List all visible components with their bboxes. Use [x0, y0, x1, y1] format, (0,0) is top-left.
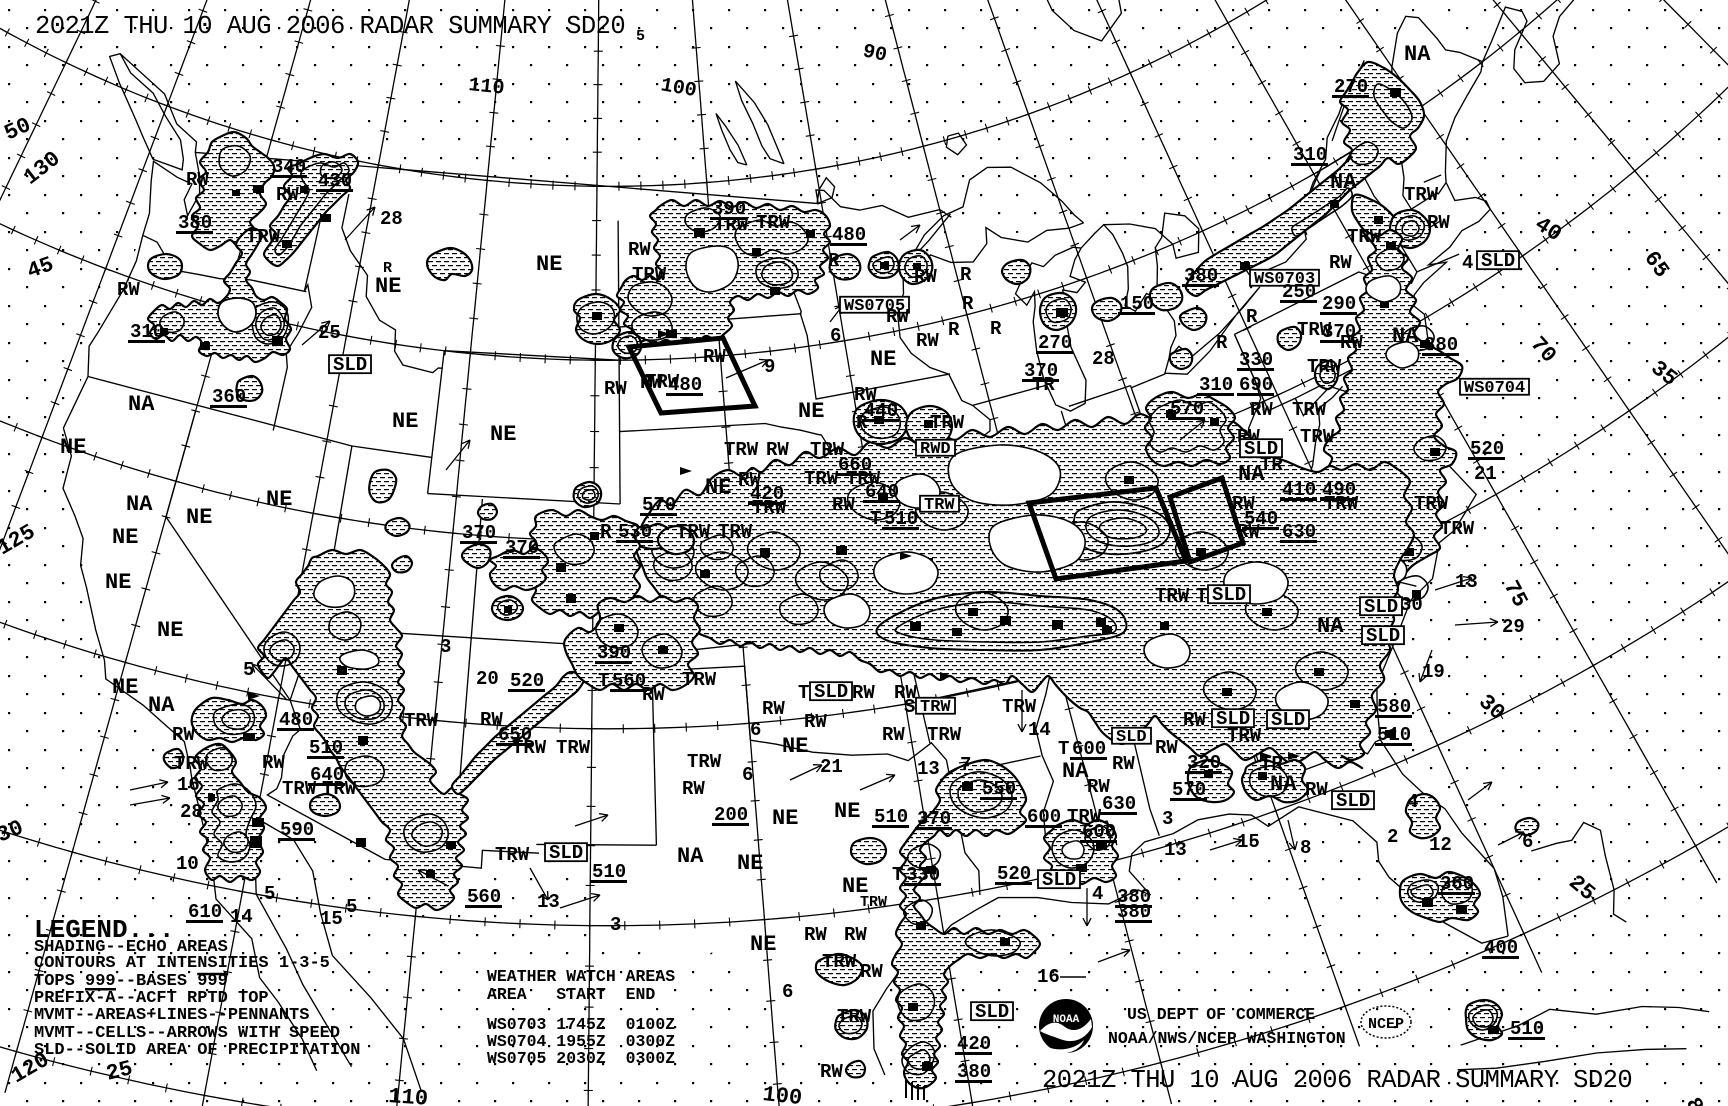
- svg-text:400: 400: [1484, 937, 1518, 959]
- svg-text:T: T: [1196, 585, 1207, 607]
- svg-text:690: 690: [1239, 374, 1273, 396]
- svg-text:550: 550: [982, 778, 1016, 800]
- svg-text:NE: NE: [750, 932, 776, 957]
- svg-text:SLD: SLD: [975, 1001, 1009, 1023]
- svg-text:RW: RW: [1183, 709, 1206, 731]
- svg-text:TRW: TRW: [1324, 493, 1359, 515]
- svg-text:NE: NE: [737, 851, 763, 876]
- svg-text:NE: NE: [105, 570, 131, 595]
- svg-text:RW: RW: [117, 279, 140, 301]
- svg-text:510: 510: [874, 806, 908, 828]
- svg-text:RW: RW: [682, 778, 705, 800]
- svg-text:TRW: TRW: [1227, 725, 1262, 747]
- svg-text:5: 5: [243, 659, 254, 681]
- svg-text:TRW: TRW: [860, 894, 887, 911]
- svg-text:630: 630: [1102, 793, 1136, 815]
- svg-text:530: 530: [618, 521, 652, 543]
- svg-text:TRW: TRW: [837, 1006, 872, 1028]
- svg-text:600: 600: [1072, 738, 1106, 760]
- svg-text:TRW: TRW: [1292, 399, 1327, 421]
- svg-text:AREA START END: AREA START END: [487, 985, 655, 1004]
- svg-text:SLD: SLD: [814, 681, 848, 703]
- svg-text:NA: NA: [1317, 614, 1344, 639]
- svg-text:TRW: TRW: [930, 412, 965, 434]
- svg-text:270: 270: [1038, 332, 1072, 354]
- svg-text:21: 21: [1474, 463, 1497, 485]
- svg-text:WEATHER WATCH AREAS: WEATHER WATCH AREAS: [487, 967, 675, 986]
- svg-text:510: 510: [884, 508, 918, 530]
- svg-text:R: R: [383, 260, 392, 277]
- svg-text:16: 16: [177, 774, 200, 796]
- svg-text:TRW: TRW: [927, 724, 962, 746]
- svg-text:6: 6: [1522, 831, 1533, 853]
- svg-text:SLD: SLD: [1366, 625, 1400, 647]
- svg-text:TRW: TRW: [756, 212, 791, 234]
- svg-text:2021Z THU 10 AUG 2006 RADAR SU: 2021Z THU 10 AUG 2006 RADAR SUMMARY SD20: [1042, 1066, 1632, 1095]
- svg-text:NA: NA: [1062, 759, 1089, 784]
- svg-text:640: 640: [865, 481, 899, 503]
- svg-text:600: 600: [1082, 821, 1116, 843]
- svg-text:15: 15: [1237, 831, 1260, 853]
- svg-text:600: 600: [1027, 806, 1061, 828]
- svg-text:RW: RW: [1155, 737, 1178, 759]
- svg-text:RW: RW: [1237, 521, 1260, 543]
- svg-text:TRW: TRW: [174, 753, 209, 775]
- svg-text:RW: RW: [1305, 779, 1328, 801]
- svg-text:TRW: TRW: [676, 521, 711, 543]
- svg-text:100: 100: [761, 1082, 803, 1106]
- svg-text:5: 5: [264, 883, 275, 905]
- svg-text:SLD: SLD: [1271, 709, 1305, 731]
- svg-text:TRW: TRW: [1300, 426, 1335, 448]
- svg-text:380: 380: [957, 1061, 991, 1083]
- svg-text:520: 520: [997, 863, 1031, 885]
- svg-text:T: T: [598, 670, 609, 692]
- svg-text:RWD: RWD: [920, 440, 951, 459]
- svg-text:R: R: [1246, 306, 1258, 328]
- svg-text:SLD: SLD: [1042, 869, 1076, 891]
- svg-text:RW: RW: [844, 924, 867, 946]
- svg-text:20: 20: [476, 668, 499, 690]
- svg-text:420: 420: [957, 1033, 991, 1055]
- svg-text:110: 110: [388, 1084, 429, 1106]
- svg-text:TRW: TRW: [512, 737, 547, 759]
- svg-text:25: 25: [318, 322, 341, 344]
- svg-text:380: 380: [1424, 334, 1458, 356]
- svg-text:TRW: TRW: [804, 468, 839, 490]
- svg-text:TRW: TRW: [1155, 585, 1190, 607]
- svg-text:270: 270: [1334, 76, 1368, 98]
- svg-text:NA: NA: [1392, 324, 1419, 349]
- svg-text:4: 4: [1407, 791, 1418, 813]
- svg-text:NE: NE: [186, 505, 212, 530]
- svg-text:4: 4: [1092, 883, 1103, 905]
- svg-text:510: 510: [592, 861, 626, 883]
- svg-text:RW: RW: [916, 330, 939, 352]
- svg-text:WS0704: WS0704: [1464, 379, 1525, 398]
- svg-text:NE: NE: [266, 487, 292, 512]
- svg-text:14: 14: [1028, 719, 1051, 741]
- svg-text:NE: NE: [60, 435, 86, 460]
- svg-text:RW: RW: [276, 184, 299, 206]
- svg-text:TRW: TRW: [724, 439, 759, 461]
- svg-text:520: 520: [1470, 438, 1504, 460]
- svg-text:570: 570: [642, 494, 676, 516]
- svg-text:6: 6: [830, 325, 841, 347]
- svg-text:NCEP: NCEP: [1368, 1016, 1404, 1033]
- svg-text:TRW: TRW: [687, 751, 722, 773]
- svg-text:SLD: SLD: [1481, 250, 1515, 272]
- svg-text:T: T: [798, 682, 809, 704]
- svg-text:R: R: [962, 293, 974, 315]
- svg-text:13: 13: [537, 891, 560, 913]
- svg-text:WS0705 2030Z 0300Z: WS0705 2030Z 0300Z: [487, 1049, 675, 1068]
- svg-text:590: 590: [280, 819, 314, 841]
- svg-text:NOAA/NWS/NCEP WASHINGTON: NOAA/NWS/NCEP WASHINGTON: [1108, 1029, 1346, 1048]
- svg-text:RW: RW: [886, 306, 909, 328]
- svg-text:21: 21: [820, 756, 843, 778]
- svg-text:TR: TR: [1032, 374, 1055, 396]
- svg-text:NE: NE: [490, 422, 516, 447]
- svg-text:30: 30: [1400, 594, 1423, 616]
- svg-text:510: 510: [1377, 724, 1411, 746]
- svg-text:9: 9: [764, 356, 775, 378]
- svg-text:TRW: TRW: [682, 669, 717, 691]
- svg-text:110: 110: [467, 74, 505, 101]
- svg-text:580: 580: [1377, 696, 1411, 718]
- svg-text:NOAA: NOAA: [1053, 1014, 1080, 1026]
- svg-text:19: 19: [1422, 661, 1445, 683]
- svg-text:NE: NE: [798, 399, 824, 424]
- svg-text:RW: RW: [1329, 252, 1352, 274]
- svg-text:T: T: [870, 508, 881, 530]
- svg-text:SLD: SLD: [333, 354, 367, 376]
- svg-text:360: 360: [1440, 873, 1474, 895]
- svg-text:TRW: TRW: [920, 698, 951, 717]
- svg-text:6: 6: [750, 719, 761, 741]
- svg-text:RW: RW: [186, 169, 209, 191]
- svg-text:NA: NA: [148, 693, 175, 718]
- svg-text:310: 310: [130, 321, 164, 343]
- svg-text:13: 13: [1455, 571, 1478, 593]
- svg-text:RW: RW: [1112, 753, 1135, 775]
- svg-text:TRW: TRW: [1414, 493, 1449, 515]
- svg-text:TRW: TRW: [556, 737, 591, 759]
- svg-text:US DEPT OF COMMERCE: US DEPT OF COMMERCE: [1127, 1005, 1315, 1024]
- svg-text:510: 510: [309, 737, 343, 759]
- svg-text:4: 4: [1462, 252, 1473, 274]
- svg-text:480: 480: [832, 224, 866, 246]
- svg-text:290: 290: [1322, 293, 1356, 315]
- svg-text:TRW: TRW: [1307, 356, 1342, 378]
- svg-text:RW: RW: [820, 1061, 843, 1083]
- svg-text:TRW: TRW: [404, 710, 439, 732]
- svg-text:R: R: [948, 319, 960, 341]
- svg-text:6: 6: [782, 981, 793, 1003]
- svg-text:NE: NE: [782, 734, 808, 759]
- svg-text:10: 10: [176, 853, 199, 875]
- svg-text:R: R: [1216, 332, 1228, 354]
- svg-text:RW: RW: [642, 684, 665, 706]
- svg-text:370: 370: [505, 537, 539, 559]
- svg-text:TRW: TRW: [1404, 184, 1439, 206]
- svg-text:380: 380: [178, 212, 212, 234]
- svg-text:RW: RW: [172, 724, 195, 746]
- svg-text:430: 430: [318, 170, 352, 192]
- svg-text:SLD--SOLID AREA OF PRECIPITATI: SLD--SOLID AREA OF PRECIPITATION: [34, 1041, 360, 1060]
- svg-text:NA: NA: [128, 392, 155, 417]
- svg-text:13: 13: [1164, 839, 1187, 861]
- svg-text:14: 14: [230, 906, 253, 928]
- svg-text:RW: RW: [766, 439, 789, 461]
- svg-text:R: R: [990, 318, 1002, 340]
- svg-text:TRW: TRW: [322, 778, 357, 800]
- svg-text:SLD: SLD: [549, 842, 583, 864]
- svg-text:560: 560: [467, 886, 501, 908]
- svg-text:TRW: TRW: [1347, 226, 1382, 248]
- svg-text:NA: NA: [1330, 170, 1357, 195]
- svg-text:RW: RW: [1340, 332, 1363, 354]
- svg-text:RW: RW: [703, 346, 726, 368]
- svg-text:5: 5: [346, 896, 357, 918]
- svg-text:380: 380: [1117, 901, 1151, 923]
- svg-text:SLD: SLD: [1364, 596, 1398, 618]
- svg-text:480: 480: [668, 374, 702, 396]
- svg-text:310: 310: [1199, 374, 1233, 396]
- svg-text:29: 29: [1502, 616, 1525, 638]
- svg-text:TRW: TRW: [718, 521, 753, 543]
- svg-text:570: 570: [1172, 779, 1206, 801]
- svg-text:NE: NE: [157, 618, 183, 643]
- svg-text:3: 3: [440, 636, 451, 658]
- svg-text:RW: RW: [628, 239, 651, 261]
- svg-text:R: R: [960, 264, 972, 286]
- svg-text:TR: TR: [1260, 454, 1283, 476]
- svg-text:3: 3: [1162, 808, 1173, 830]
- svg-text:TRW: TRW: [495, 844, 530, 866]
- svg-text:T: T: [892, 864, 903, 886]
- svg-text:NA: NA: [1404, 42, 1431, 67]
- svg-text:NE: NE: [392, 409, 418, 434]
- svg-text:MVMT--AREAS+LINES--PENNANTS: MVMT--AREAS+LINES--PENNANTS: [34, 1006, 309, 1025]
- svg-text:TRW: TRW: [1440, 518, 1475, 540]
- svg-text:570: 570: [1170, 398, 1204, 420]
- svg-text:RW: RW: [832, 494, 855, 516]
- svg-text:410: 410: [1282, 479, 1316, 501]
- svg-text:RW: RW: [852, 682, 875, 704]
- svg-text:NA: NA: [677, 844, 704, 869]
- svg-text:12: 12: [1429, 834, 1452, 856]
- svg-text:NA: NA: [1270, 772, 1297, 797]
- svg-text:RW: RW: [804, 924, 827, 946]
- svg-text:CONTOURS AT INTENSITIES 1-3-5: CONTOURS AT INTENSITIES 1-3-5: [34, 954, 330, 973]
- svg-text:370: 370: [462, 522, 496, 544]
- svg-text:R: R: [856, 412, 868, 434]
- svg-text:SLD: SLD: [1212, 584, 1246, 606]
- svg-text:28: 28: [380, 208, 403, 230]
- svg-text:RW: RW: [762, 698, 785, 720]
- svg-text:390: 390: [597, 642, 631, 664]
- svg-text:2021Z THU 10 AUG 2006 RADAR SU: 2021Z THU 10 AUG 2006 RADAR SUMMARY SD20: [35, 12, 625, 41]
- svg-text:370: 370: [917, 808, 951, 830]
- svg-text:16: 16: [1037, 966, 1060, 988]
- svg-text:TRW: TRW: [924, 496, 955, 515]
- svg-text:TRW: TRW: [714, 214, 749, 236]
- svg-text:380: 380: [1184, 265, 1218, 287]
- svg-text:7: 7: [960, 754, 971, 776]
- svg-text:RW: RW: [604, 378, 627, 400]
- svg-text:NE: NE: [834, 799, 860, 824]
- svg-text:520: 520: [510, 670, 544, 692]
- svg-text:90: 90: [861, 40, 889, 67]
- svg-text:630: 630: [1282, 521, 1316, 543]
- svg-text:360: 360: [212, 386, 246, 408]
- svg-text:510: 510: [1510, 1018, 1544, 1040]
- svg-text:250: 250: [1282, 281, 1316, 303]
- svg-text:340: 340: [272, 156, 306, 178]
- svg-text:T: T: [1058, 738, 1069, 760]
- svg-text:2: 2: [1387, 826, 1398, 848]
- svg-text:TRW: TRW: [632, 264, 667, 286]
- svg-text:RW: RW: [914, 266, 937, 288]
- svg-text:NE: NE: [705, 475, 731, 500]
- svg-text:320: 320: [1187, 752, 1221, 774]
- svg-text:TRW: TRW: [246, 226, 281, 248]
- svg-text:15: 15: [320, 908, 343, 930]
- svg-text:610: 610: [188, 901, 222, 923]
- svg-text:480: 480: [279, 709, 313, 731]
- svg-text:SLD: SLD: [1116, 728, 1147, 747]
- svg-text:8: 8: [1300, 837, 1311, 859]
- svg-text:5: 5: [636, 28, 645, 45]
- svg-text:NA: NA: [126, 492, 153, 517]
- svg-text:NE: NE: [112, 675, 138, 700]
- svg-text:330: 330: [1239, 349, 1273, 371]
- svg-text:TRW: TRW: [822, 951, 857, 973]
- svg-text:NE: NE: [772, 806, 798, 831]
- svg-text:6: 6: [742, 764, 753, 786]
- svg-text:NE: NE: [536, 252, 562, 277]
- svg-text:28: 28: [1092, 348, 1115, 370]
- svg-text:150: 150: [1120, 293, 1154, 315]
- svg-text:TRW: TRW: [752, 497, 787, 519]
- svg-text:RW: RW: [860, 961, 883, 983]
- svg-text:3: 3: [610, 914, 621, 936]
- svg-text:13: 13: [917, 758, 940, 780]
- svg-text:TRW: TRW: [282, 778, 317, 800]
- svg-text:RW: RW: [804, 711, 827, 733]
- svg-text:NE: NE: [112, 525, 138, 550]
- svg-text:28: 28: [180, 801, 203, 823]
- svg-text:330: 330: [906, 864, 940, 886]
- svg-text:S: S: [904, 696, 915, 718]
- svg-text:RW: RW: [1427, 212, 1450, 234]
- svg-text:200: 200: [714, 804, 748, 826]
- svg-text:RW: RW: [882, 724, 905, 746]
- svg-text:310: 310: [1293, 144, 1327, 166]
- svg-text:RW: RW: [1250, 399, 1273, 421]
- svg-text:440: 440: [864, 400, 898, 422]
- svg-text:RW: RW: [262, 752, 285, 774]
- svg-text:TRW: TRW: [1002, 696, 1037, 718]
- svg-text:NE: NE: [375, 274, 401, 299]
- svg-text:SLD: SLD: [1336, 790, 1370, 812]
- svg-text:R: R: [600, 521, 612, 543]
- svg-text:NE: NE: [870, 347, 896, 372]
- svg-text:R: R: [828, 250, 840, 272]
